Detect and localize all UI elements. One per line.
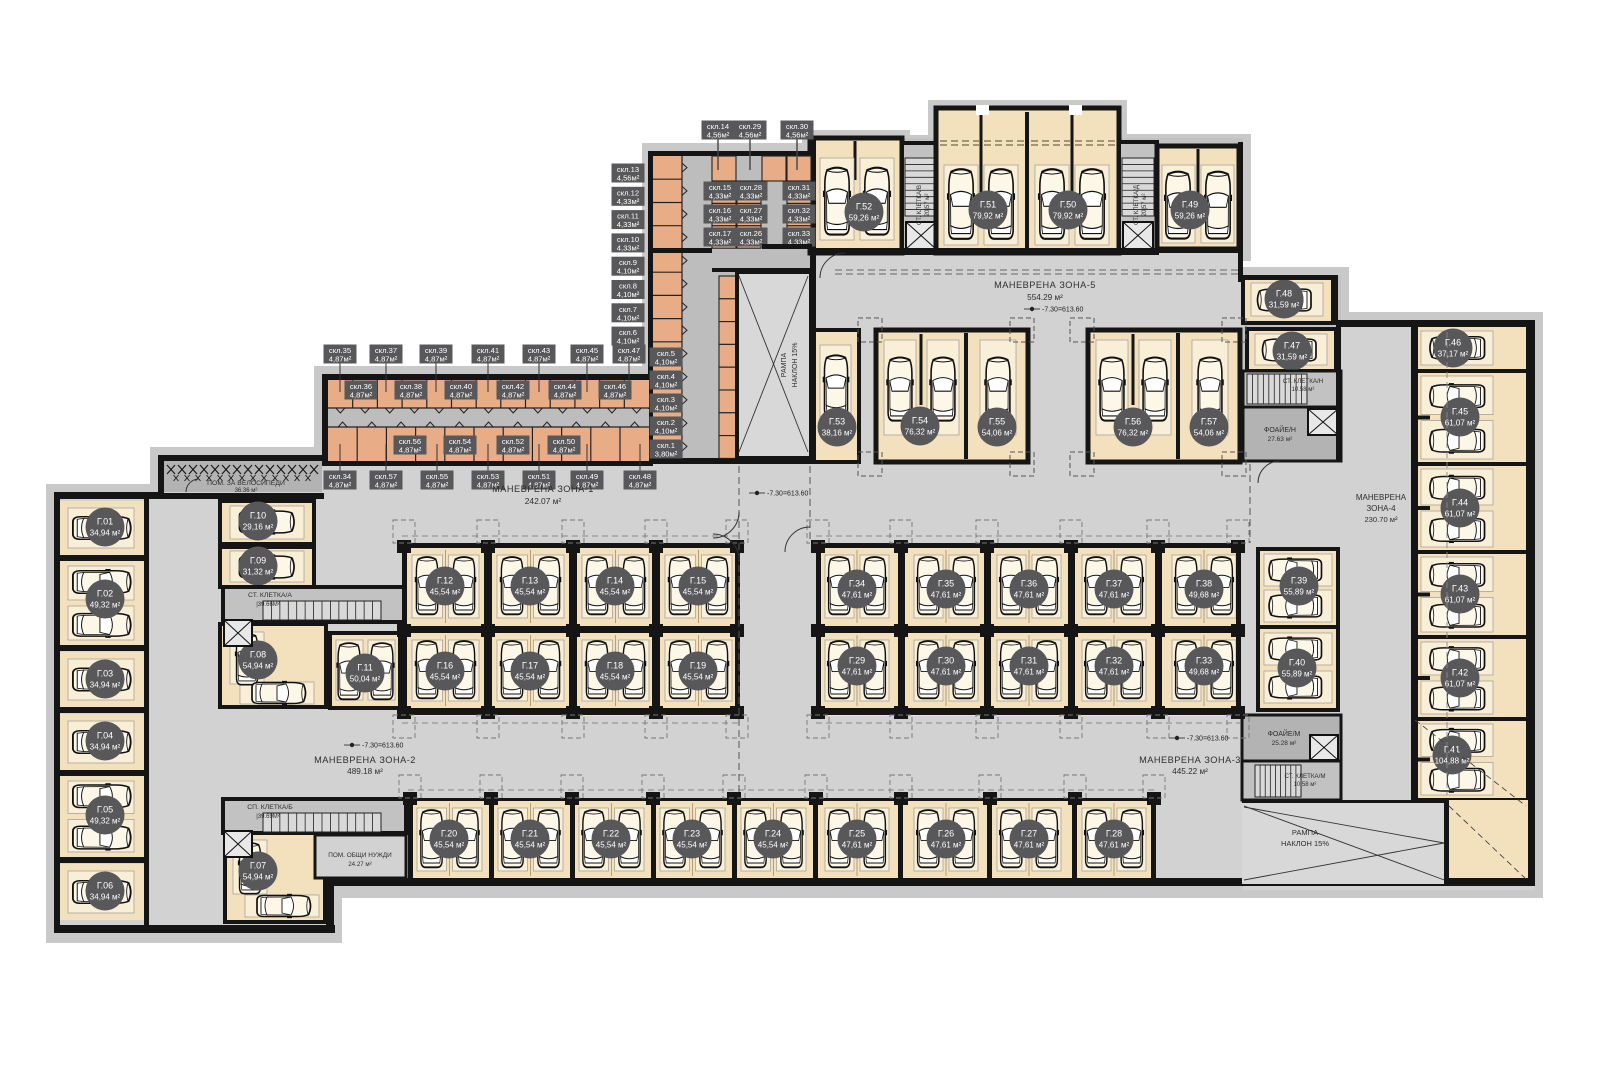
svg-text:Г.40: Г.40 — [1289, 658, 1305, 668]
svg-text:НАКЛОН 15%: НАКЛОН 15% — [792, 343, 799, 388]
svg-text:Г.16: Г.16 — [437, 661, 453, 671]
svg-text:Г.15: Г.15 — [690, 576, 706, 586]
svg-text:4,87м²: 4,87м² — [554, 391, 577, 400]
svg-text:27.63 м²: 27.63 м² — [1268, 436, 1294, 443]
svg-text:4,87м²: 4,87м² — [502, 446, 525, 455]
svg-text:Г.19: Г.19 — [690, 661, 706, 671]
svg-text:45,54 м²: 45,54 м² — [677, 841, 708, 850]
svg-text:29,16 м²: 29,16 м² — [243, 523, 274, 532]
svg-text:45,54 м²: 45,54 м² — [515, 673, 546, 682]
svg-text:54,06 м²: 54,06 м² — [982, 429, 1013, 438]
svg-text:4,87м²: 4,87м² — [450, 391, 473, 400]
svg-text:47,61 м²: 47,61 м² — [1099, 668, 1130, 677]
svg-text:59,26 м²: 59,26 м² — [1175, 212, 1206, 221]
svg-text:4,87м²: 4,87м² — [399, 446, 422, 455]
svg-text:45,54 м²: 45,54 м² — [430, 673, 461, 682]
svg-text:Г.09: Г.09 — [250, 556, 266, 566]
svg-text:79,92 м²: 79,92 м² — [1053, 212, 1084, 221]
svg-text:4,87м²: 4,87м² — [375, 355, 398, 364]
svg-text:Г.53: Г.53 — [829, 417, 845, 427]
svg-text:Г.30: Г.30 — [938, 656, 954, 666]
svg-text:50,04 м²: 50,04 м² — [350, 675, 381, 684]
svg-text:МАНЕВРЕНА ЗОНА-5: МАНЕВРЕНА ЗОНА-5 — [994, 280, 1096, 290]
svg-text:59,26 м²: 59,26 м² — [849, 214, 880, 223]
svg-text:Г.26: Г.26 — [938, 829, 954, 839]
svg-text:СТ. КЛЕТКА/Д: СТ. КЛЕТКА/Д — [1133, 184, 1140, 225]
svg-text:Г.02: Г.02 — [97, 589, 113, 599]
svg-text:61,07 м²: 61,07 м² — [1445, 596, 1476, 605]
svg-text:47,61 м²: 47,61 м² — [842, 668, 873, 677]
svg-text:ФОАЙЕ/М: ФОАЙЕ/М — [1268, 729, 1301, 738]
svg-text:45,54 м²: 45,54 м² — [515, 588, 546, 597]
svg-text:Г.17: Г.17 — [522, 661, 538, 671]
svg-text:Г.28: Г.28 — [1106, 829, 1122, 839]
svg-text:4,87м²: 4,87м² — [449, 446, 472, 455]
svg-text:Г.21: Г.21 — [522, 829, 538, 839]
svg-text:Г.32: Г.32 — [1106, 656, 1122, 666]
svg-text:4,56м²: 4,56м² — [786, 131, 809, 140]
svg-text:4,87м²: 4,87м² — [426, 481, 449, 490]
svg-text:47,61 м²: 47,61 м² — [1014, 668, 1045, 677]
svg-text:45,54 м²: 45,54 м² — [430, 588, 461, 597]
svg-text:Г.29: Г.29 — [849, 656, 865, 666]
svg-text:61,07 м²: 61,07 м² — [1445, 510, 1476, 519]
svg-text:76,32 м²: 76,32 м² — [1118, 429, 1149, 438]
svg-text:Г.05: Г.05 — [97, 805, 113, 815]
svg-text:445.22 м²: 445.22 м² — [1172, 767, 1208, 776]
svg-text:НАКЛОН 15%: НАКЛОН 15% — [1281, 839, 1329, 848]
svg-text:4,87м²: 4,87м² — [425, 355, 448, 364]
svg-text:ПОМ. ЗА ВЕЛОСИПЕДИ: ПОМ. ЗА ВЕЛОСИПЕДИ — [207, 480, 285, 487]
svg-text:230.70 м²: 230.70 м² — [1364, 515, 1398, 524]
svg-text:4,33м²: 4,33м² — [617, 220, 640, 229]
svg-text:4,56м²: 4,56м² — [707, 131, 730, 140]
svg-text:4,33м²: 4,33м² — [709, 192, 732, 201]
svg-text:45,54 м²: 45,54 м² — [515, 841, 546, 850]
svg-text:|39.69М²: |39.69М² — [256, 814, 280, 820]
svg-text:489.18 м²: 489.18 м² — [347, 767, 383, 776]
svg-text:4,10м²: 4,10м² — [617, 337, 640, 346]
svg-text:Г.04: Г.04 — [97, 731, 113, 741]
svg-text:4,10м²: 4,10м² — [617, 290, 640, 299]
svg-text:Г.56: Г.56 — [1125, 417, 1141, 427]
svg-text:Г.11: Г.11 — [357, 663, 373, 673]
svg-text:4,87м²: 4,87м² — [576, 355, 599, 364]
svg-text:Г.50: Г.50 — [1060, 200, 1076, 210]
svg-text:Г.20: Г.20 — [441, 829, 457, 839]
svg-text:4,10м²: 4,10м² — [655, 358, 678, 367]
svg-text:4,33м²: 4,33м² — [740, 215, 763, 224]
svg-text:4,87м²: 4,87м² — [329, 481, 352, 490]
svg-text:49,32 м²: 49,32 м² — [90, 817, 121, 826]
svg-text:34,94 м²: 34,94 м² — [90, 893, 121, 902]
svg-text:45,54 м²: 45,54 м² — [434, 841, 465, 850]
svg-text:4,87м²: 4,87м² — [604, 391, 627, 400]
svg-text:Г.38: Г.38 — [1196, 579, 1212, 589]
svg-text:Г.22: Г.22 — [603, 829, 619, 839]
svg-text:Г.55: Г.55 — [989, 417, 1005, 427]
svg-text:47,61 м²: 47,61 м² — [1099, 841, 1130, 850]
svg-text:Г.37: Г.37 — [1106, 579, 1122, 589]
svg-text:45,54 м²: 45,54 м² — [600, 673, 631, 682]
svg-text:4,87м²: 4,87м² — [528, 355, 551, 364]
svg-text:37,17 м²: 37,17 м² — [1438, 350, 1469, 359]
svg-text:Г.25: Г.25 — [849, 829, 865, 839]
svg-text:4,87м²: 4,87м² — [502, 391, 525, 400]
svg-text:Г.54: Г.54 — [912, 416, 928, 426]
svg-text:Г.34: Г.34 — [849, 579, 865, 589]
svg-text:РАМПА: РАМПА — [781, 352, 788, 377]
svg-text:4,56м²: 4,56м² — [739, 131, 762, 140]
svg-text:10.58 м²: 10.58 м² — [1294, 782, 1317, 788]
svg-text:СП. КЛЕТКА/Б: СП. КЛЕТКА/Б — [247, 804, 293, 811]
svg-text:34,94 м²: 34,94 м² — [90, 743, 121, 752]
svg-text:Г.57: Г.57 — [1201, 417, 1217, 427]
svg-text:47,61 м²: 47,61 м² — [842, 591, 873, 600]
svg-text:34,94 м²: 34,94 м² — [90, 681, 121, 690]
svg-text:4,87м²: 4,87м² — [553, 446, 576, 455]
svg-text:4,33м²: 4,33м² — [617, 197, 640, 206]
svg-text:47,61 м²: 47,61 м² — [931, 591, 962, 600]
svg-text:Г.08: Г.08 — [250, 650, 266, 660]
svg-text:4,33м²: 4,33м² — [740, 238, 763, 247]
svg-text:Г.43: Г.43 — [1452, 584, 1468, 594]
svg-text:242.07 м²: 242.07 м² — [525, 496, 562, 506]
svg-text:4,87м²: 4,87м² — [329, 355, 352, 364]
svg-text:МАНЕВРЕНА: МАНЕВРЕНА — [1356, 493, 1407, 502]
svg-text:4,33м²: 4,33м² — [709, 215, 732, 224]
svg-text:4,10м²: 4,10м² — [655, 427, 678, 436]
svg-text:Г.48: Г.48 — [1276, 289, 1292, 299]
svg-text:47,61 м²: 47,61 м² — [931, 841, 962, 850]
svg-text:-7.30=613.60: -7.30=613.60 — [362, 743, 404, 750]
svg-text:Г.31: Г.31 — [1021, 656, 1037, 666]
svg-text:45,54 м²: 45,54 м² — [683, 673, 714, 682]
svg-text:76,32 м²: 76,32 м² — [905, 428, 936, 437]
svg-text:4,10м²: 4,10м² — [655, 404, 678, 413]
svg-text:Г.14: Г.14 — [607, 576, 623, 586]
svg-text:Г.42: Г.42 — [1452, 668, 1468, 678]
svg-text:4,87м²: 4,87м² — [618, 355, 641, 364]
svg-text:Г.45: Г.45 — [1452, 407, 1468, 417]
svg-text:38,16 м²: 38,16 м² — [822, 429, 853, 438]
svg-text:54,94 м²: 54,94 м² — [243, 662, 274, 671]
svg-text:4,87м²: 4,87м² — [477, 355, 500, 364]
svg-text:34,94 м²: 34,94 м² — [90, 529, 121, 538]
svg-text:55,89 м²: 55,89 м² — [1284, 588, 1315, 597]
svg-text:-7.30=613.60: -7.30=613.60 — [1187, 736, 1229, 743]
svg-text:|39.66М²: |39.66М² — [256, 602, 280, 608]
svg-text:79,92 м²: 79,92 м² — [973, 212, 1004, 221]
svg-text:4,87м²: 4,87м² — [400, 391, 423, 400]
svg-text:49,68 м²: 49,68 м² — [1189, 591, 1220, 600]
svg-text:54,94 м²: 54,94 м² — [243, 873, 274, 882]
svg-text:4,33м²: 4,33м² — [788, 215, 811, 224]
svg-text:4,33м²: 4,33м² — [709, 238, 732, 247]
svg-text:49,32 м²: 49,32 м² — [90, 601, 121, 610]
svg-text:20|57 м²: 20|57 м² — [925, 194, 931, 217]
svg-text:47,61 м²: 47,61 м² — [842, 841, 873, 850]
svg-text:Г.07: Г.07 — [250, 861, 266, 871]
svg-text:45,54 м²: 45,54 м² — [758, 841, 789, 850]
svg-text:Г.23: Г.23 — [684, 829, 700, 839]
svg-text:СТ. КЛЕТКА/В: СТ. КЛЕТКА/В — [916, 185, 923, 225]
svg-text:ЗОНА-4: ЗОНА-4 — [1366, 504, 1396, 513]
svg-text:-7.30=613.60: -7.30=613.60 — [767, 491, 809, 498]
svg-text:Г.03: Г.03 — [97, 669, 113, 679]
svg-text:Г.01: Г.01 — [97, 517, 113, 527]
svg-text:МАНЕВРЕНА ЗОНА-1: МАНЕВРЕНА ЗОНА-1 — [492, 484, 594, 494]
svg-text:24.27 м²: 24.27 м² — [348, 861, 372, 868]
svg-text:55,89 м²: 55,89 м² — [1282, 670, 1313, 679]
svg-text:СТ. КЛЕТКА/М: СТ. КЛЕТКА/М — [1285, 773, 1326, 780]
svg-text:31,32 м²: 31,32 м² — [243, 568, 274, 577]
svg-text:20|57 м²: 20|57 м² — [1142, 194, 1148, 217]
svg-text:61,07 м²: 61,07 м² — [1445, 680, 1476, 689]
svg-text:31,59 м²: 31,59 м² — [1269, 301, 1300, 310]
svg-text:Г.52: Г.52 — [856, 202, 872, 212]
svg-text:45,54 м²: 45,54 м² — [683, 588, 714, 597]
svg-text:Г.27: Г.27 — [1021, 829, 1037, 839]
svg-text:СТ. КЛЕТКА/А: СТ. КЛЕТКА/А — [248, 592, 292, 599]
svg-text:Г.51: Г.51 — [980, 200, 996, 210]
svg-text:ФОАЙЕ/Н: ФОАЙЕ/Н — [1264, 425, 1296, 434]
svg-text:Г.35: Г.35 — [938, 579, 954, 589]
svg-text:МАНЕВРЕНА ЗОНА-2: МАНЕВРЕНА ЗОНА-2 — [314, 755, 416, 765]
svg-text:Г.49: Г.49 — [1182, 200, 1198, 210]
svg-text:4,10м²: 4,10м² — [655, 381, 678, 390]
svg-text:47,61 м²: 47,61 м² — [1014, 841, 1045, 850]
svg-text:Г.13: Г.13 — [522, 576, 538, 586]
svg-text:4,56м²: 4,56м² — [617, 174, 640, 183]
svg-text:61,07 м²: 61,07 м² — [1445, 419, 1476, 428]
svg-text:Г.47: Г.47 — [1284, 341, 1300, 351]
svg-text:4,87м²: 4,87м² — [350, 391, 373, 400]
svg-text:4,33м²: 4,33м² — [788, 192, 811, 201]
svg-text:ПОМ. ОБЩИ НУЖДИ: ПОМ. ОБЩИ НУЖДИ — [328, 852, 392, 859]
svg-text:554.29 м²: 554.29 м² — [1027, 293, 1063, 302]
svg-text:МАНЕВРЕНА ЗОНА-3: МАНЕВРЕНА ЗОНА-3 — [1139, 755, 1241, 765]
svg-text:47,61 м²: 47,61 м² — [931, 668, 962, 677]
svg-text:Г.12: Г.12 — [437, 576, 453, 586]
svg-text:Г.06: Г.06 — [97, 881, 113, 891]
svg-text:4,10м²: 4,10м² — [617, 267, 640, 276]
svg-text:4,33м²: 4,33м² — [740, 192, 763, 201]
svg-text:47,61 м²: 47,61 м² — [1099, 591, 1130, 600]
svg-text:4,87м²: 4,87м² — [375, 481, 398, 490]
svg-text:Г.18: Г.18 — [607, 661, 623, 671]
svg-text:Г.33: Г.33 — [1196, 656, 1212, 666]
svg-text:Г.39: Г.39 — [1291, 576, 1307, 586]
svg-text:РАМПА: РАМПА — [1292, 828, 1318, 837]
svg-text:10.58 м²: 10.58 м² — [1292, 387, 1315, 393]
svg-text:СТ. КЛЕТКА/Н: СТ. КЛЕТКА/Н — [1283, 378, 1323, 385]
svg-text:4,10м²: 4,10м² — [617, 313, 640, 322]
svg-text:3,80м²: 3,80м² — [655, 450, 678, 459]
svg-text:45,54 м²: 45,54 м² — [600, 588, 631, 597]
svg-text:4,87м²: 4,87м² — [629, 481, 652, 490]
svg-text:49,68 м²: 49,68 м² — [1189, 668, 1220, 677]
svg-text:45,54 м²: 45,54 м² — [596, 841, 627, 850]
svg-text:Г.24: Г.24 — [765, 829, 781, 839]
svg-text:Г.44: Г.44 — [1452, 498, 1468, 508]
svg-text:Г.36: Г.36 — [1021, 579, 1037, 589]
svg-text:47,61 м²: 47,61 м² — [1014, 591, 1045, 600]
svg-text:4,33м²: 4,33м² — [617, 243, 640, 252]
svg-text:54,06 м²: 54,06 м² — [1194, 429, 1225, 438]
svg-text:-7.30=613.60: -7.30=613.60 — [1042, 307, 1084, 314]
svg-text:Г.10: Г.10 — [250, 511, 266, 521]
svg-text:25.28 м²: 25.28 м² — [1272, 740, 1298, 747]
svg-text:31,59 м²: 31,59 м² — [1277, 353, 1308, 362]
